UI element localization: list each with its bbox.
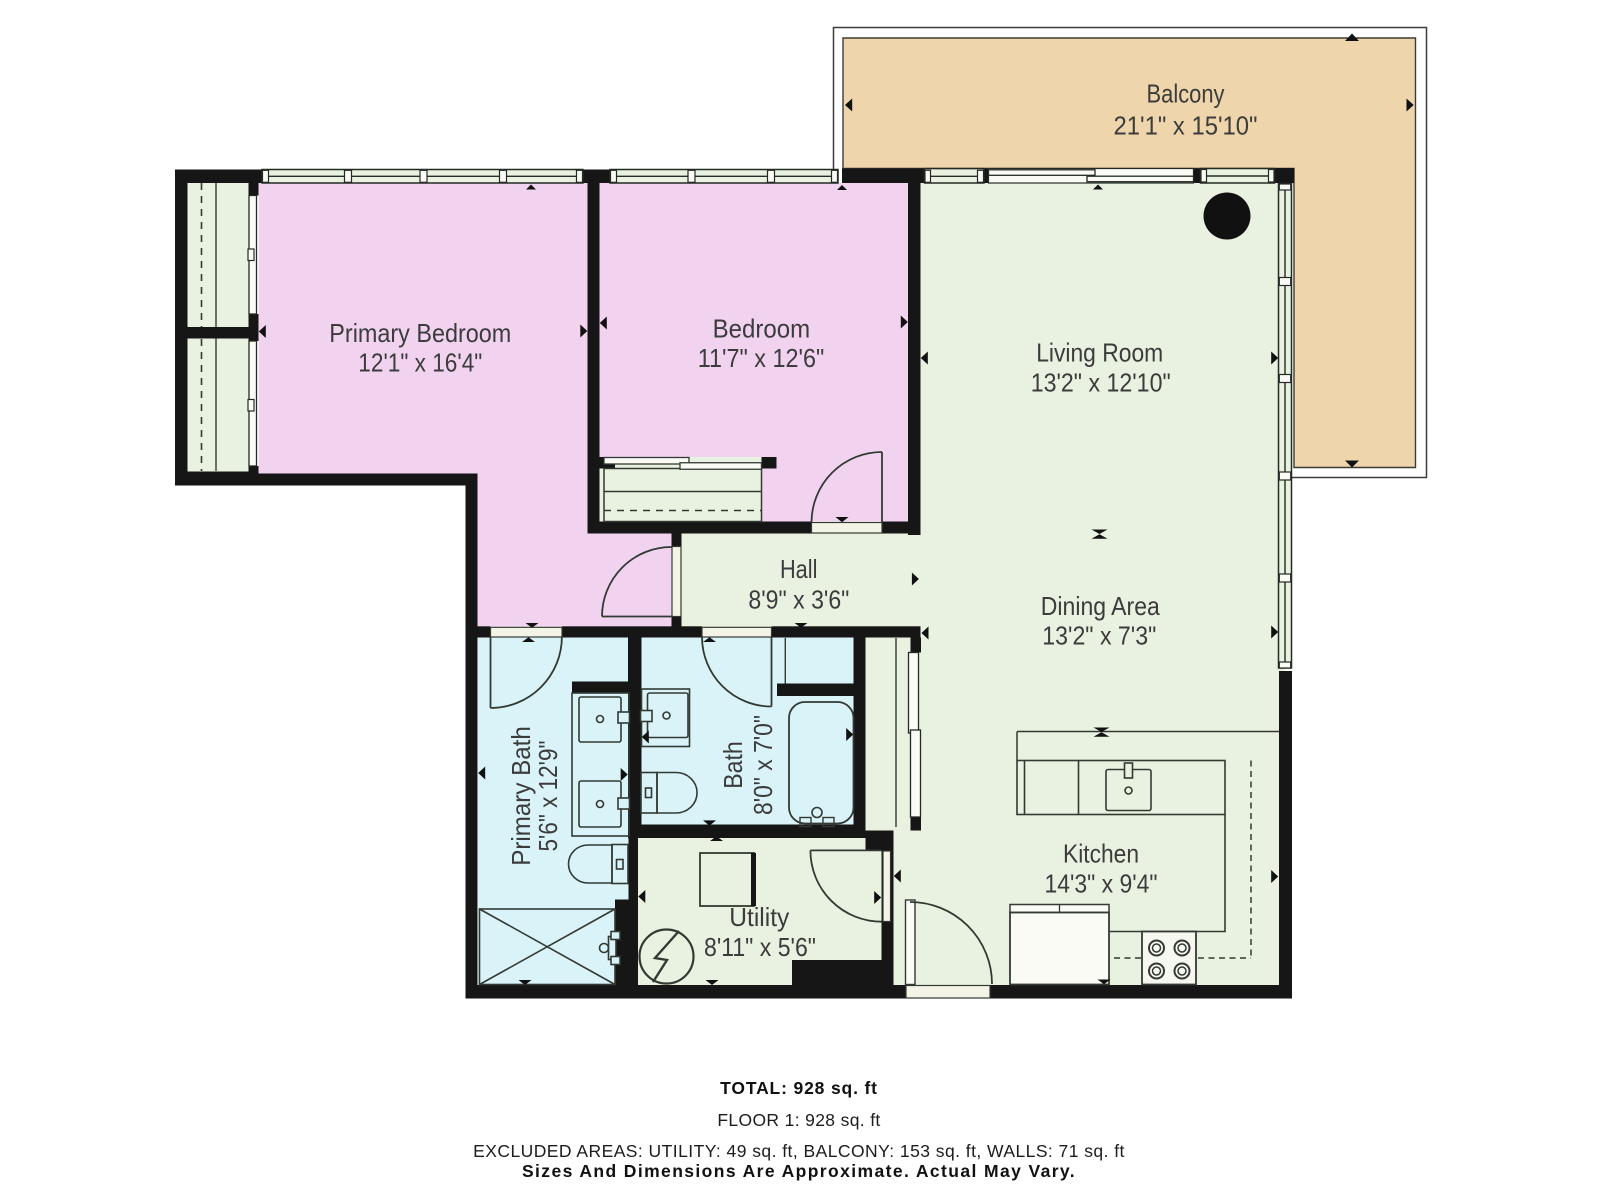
svg-text:Sizes And Dimensions Are Appro: Sizes And Dimensions Are Approximate. Ac… <box>522 1161 1076 1181</box>
svg-text:Bath: Bath <box>718 741 748 789</box>
svg-text:Primary Bath: Primary Bath <box>506 726 536 866</box>
svg-text:FLOOR 1: 928 sq. ft: FLOOR 1: 928 sq. ft <box>717 1110 880 1130</box>
svg-text:8'0" x 7'0": 8'0" x 7'0" <box>748 715 778 815</box>
svg-text:Utility: Utility <box>729 902 789 932</box>
svg-text:Balcony: Balcony <box>1147 78 1225 108</box>
svg-text:Kitchen: Kitchen <box>1063 839 1139 869</box>
svg-text:Hall: Hall <box>780 554 818 584</box>
svg-text:8'9" x 3'6": 8'9" x 3'6" <box>748 585 849 615</box>
svg-text:Dining Area: Dining Area <box>1041 591 1160 621</box>
svg-text:EXCLUDED AREAS: UTILITY: 49 sq: EXCLUDED AREAS: UTILITY: 49 sq. ft, BALC… <box>473 1141 1125 1161</box>
svg-text:14'3" x 9'4": 14'3" x 9'4" <box>1045 869 1158 899</box>
svg-text:12'1" x 16'4": 12'1" x 16'4" <box>358 348 482 378</box>
svg-text:Primary Bedroom: Primary Bedroom <box>329 318 511 348</box>
svg-text:13'2" x 12'10": 13'2" x 12'10" <box>1031 367 1171 397</box>
svg-text:11'7" x 12'6": 11'7" x 12'6" <box>698 343 825 373</box>
svg-text:5'6" x 12'9": 5'6" x 12'9" <box>533 741 563 852</box>
svg-text:21'1" x 15'10": 21'1" x 15'10" <box>1114 111 1258 141</box>
svg-text:Living Room: Living Room <box>1036 337 1163 367</box>
svg-text:Bedroom: Bedroom <box>713 314 811 344</box>
svg-text:TOTAL: 928 sq. ft: TOTAL: 928 sq. ft <box>720 1078 878 1098</box>
svg-text:8'11" x 5'6": 8'11" x 5'6" <box>704 932 816 962</box>
svg-text:13'2" x 7'3": 13'2" x 7'3" <box>1042 620 1156 650</box>
